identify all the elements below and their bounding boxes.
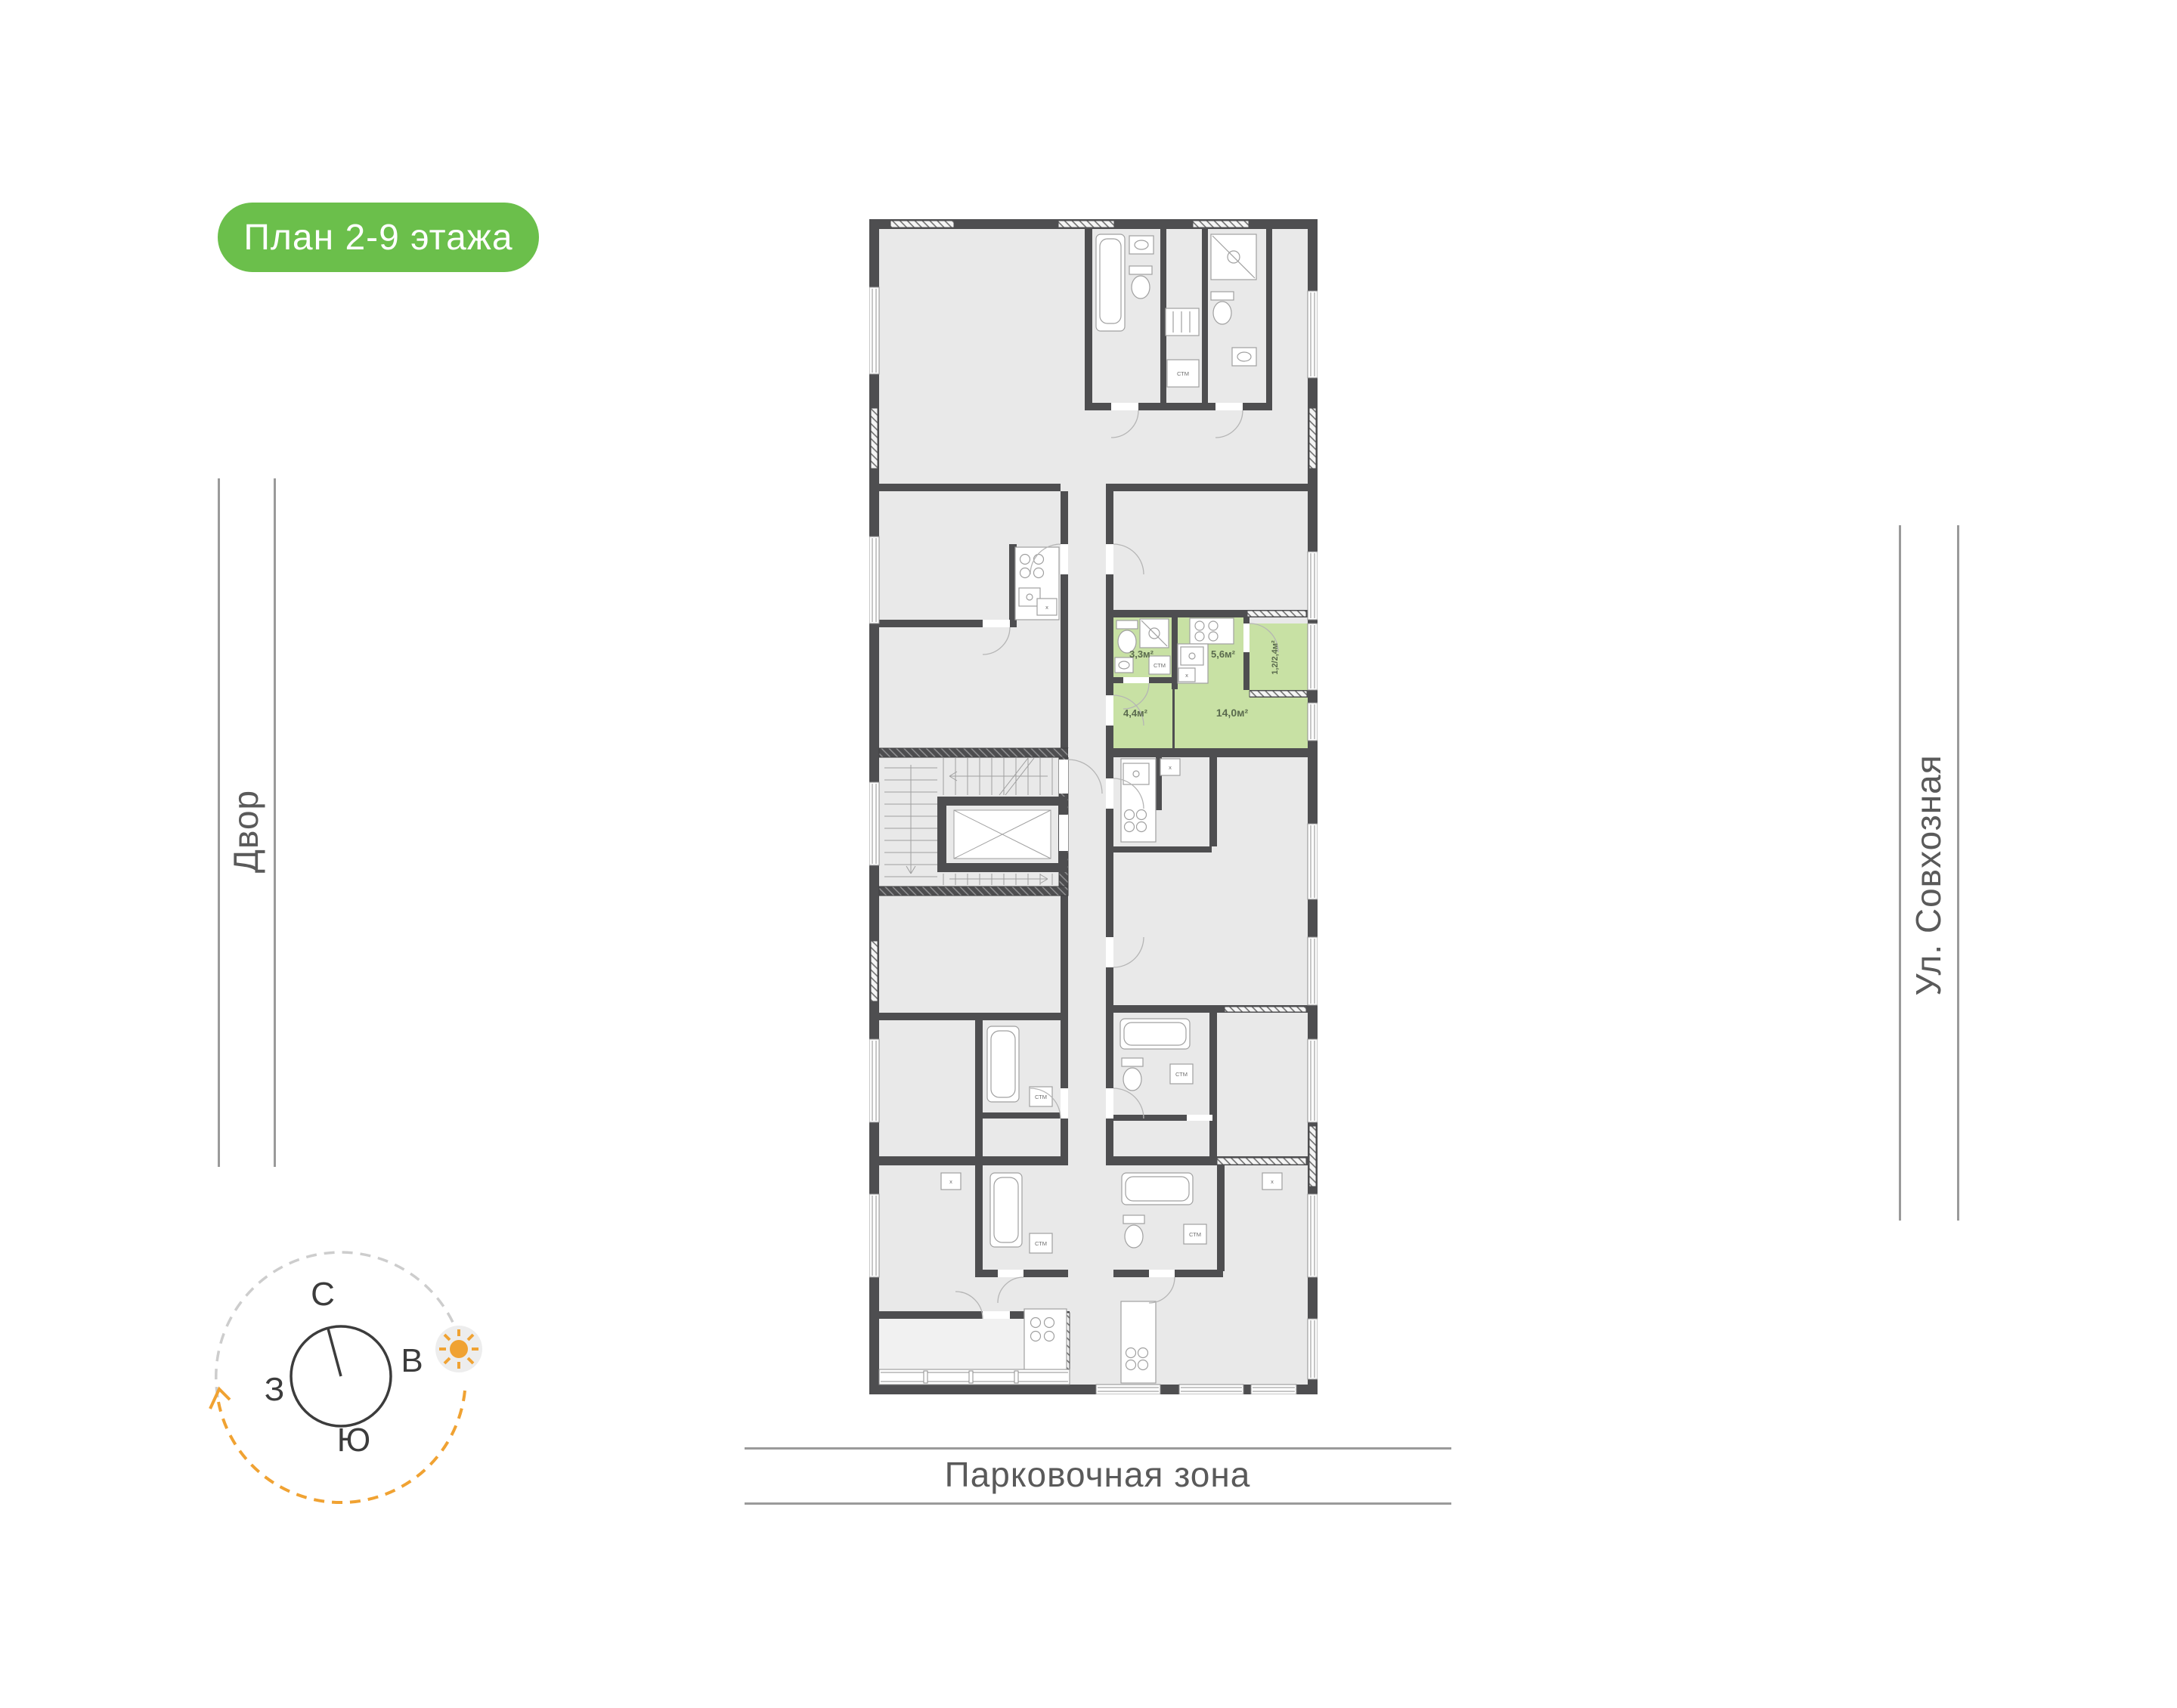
floor-plan-badge: План 2-9 этажа: [218, 203, 539, 272]
compass-west-label: З: [265, 1371, 285, 1408]
washing-machine-label: СТМ: [1035, 1240, 1047, 1247]
hallway-area-label: 4,4м²: [1123, 707, 1148, 719]
compass-east-label: В: [401, 1342, 423, 1379]
floor-plan: 3,3м² 5,6м² 4,4м² 14,0м² 1,2/2,4м² СТМ С…: [869, 219, 1318, 1394]
compass: С В З Ю: [189, 1202, 506, 1519]
left-road-label: Двор: [225, 756, 267, 907]
right-road-line-outer: [1957, 525, 1959, 1221]
balcony-area-label: 1,2/2,4м²: [1271, 640, 1280, 675]
parking-zone-label: Парковочная зона: [871, 1453, 1324, 1496]
page: План 2-9 этажа Двор Ул. Совхозная Парков…: [0, 0, 2177, 1708]
vent-mark: x: [1045, 604, 1048, 611]
vent-mark: x: [1271, 1178, 1274, 1185]
right-road-line-inner: [1899, 525, 1901, 1221]
bathroom-area-label: 3,3м²: [1129, 648, 1154, 660]
compass-north-label: С: [311, 1276, 335, 1313]
vent-mark: x: [949, 1178, 952, 1185]
washing-machine-label: СТМ: [1177, 370, 1189, 377]
vent-mark: x: [1169, 764, 1172, 771]
elevator: [937, 797, 1068, 872]
left-road-line-inner: [274, 478, 276, 1167]
parking-line-top: [745, 1447, 1451, 1450]
washing-machine-label: СТМ: [1035, 1094, 1047, 1100]
left-road-line-outer: [218, 478, 220, 1167]
sun-icon: [439, 1329, 478, 1369]
washing-machine-label: СТМ: [1175, 1071, 1188, 1078]
living-room-area-label: 14,0м²: [1216, 707, 1249, 719]
right-road-label: Ул. Совхозная: [1907, 724, 1949, 1026]
kitchen-area-label: 5,6м²: [1211, 648, 1236, 660]
washing-machine-label: СТМ: [1189, 1231, 1201, 1238]
vent-mark: x: [1185, 672, 1188, 679]
parking-line-bottom: [745, 1502, 1451, 1505]
washing-machine-label: СТМ: [1154, 662, 1166, 669]
compass-south-label: Ю: [337, 1422, 370, 1459]
